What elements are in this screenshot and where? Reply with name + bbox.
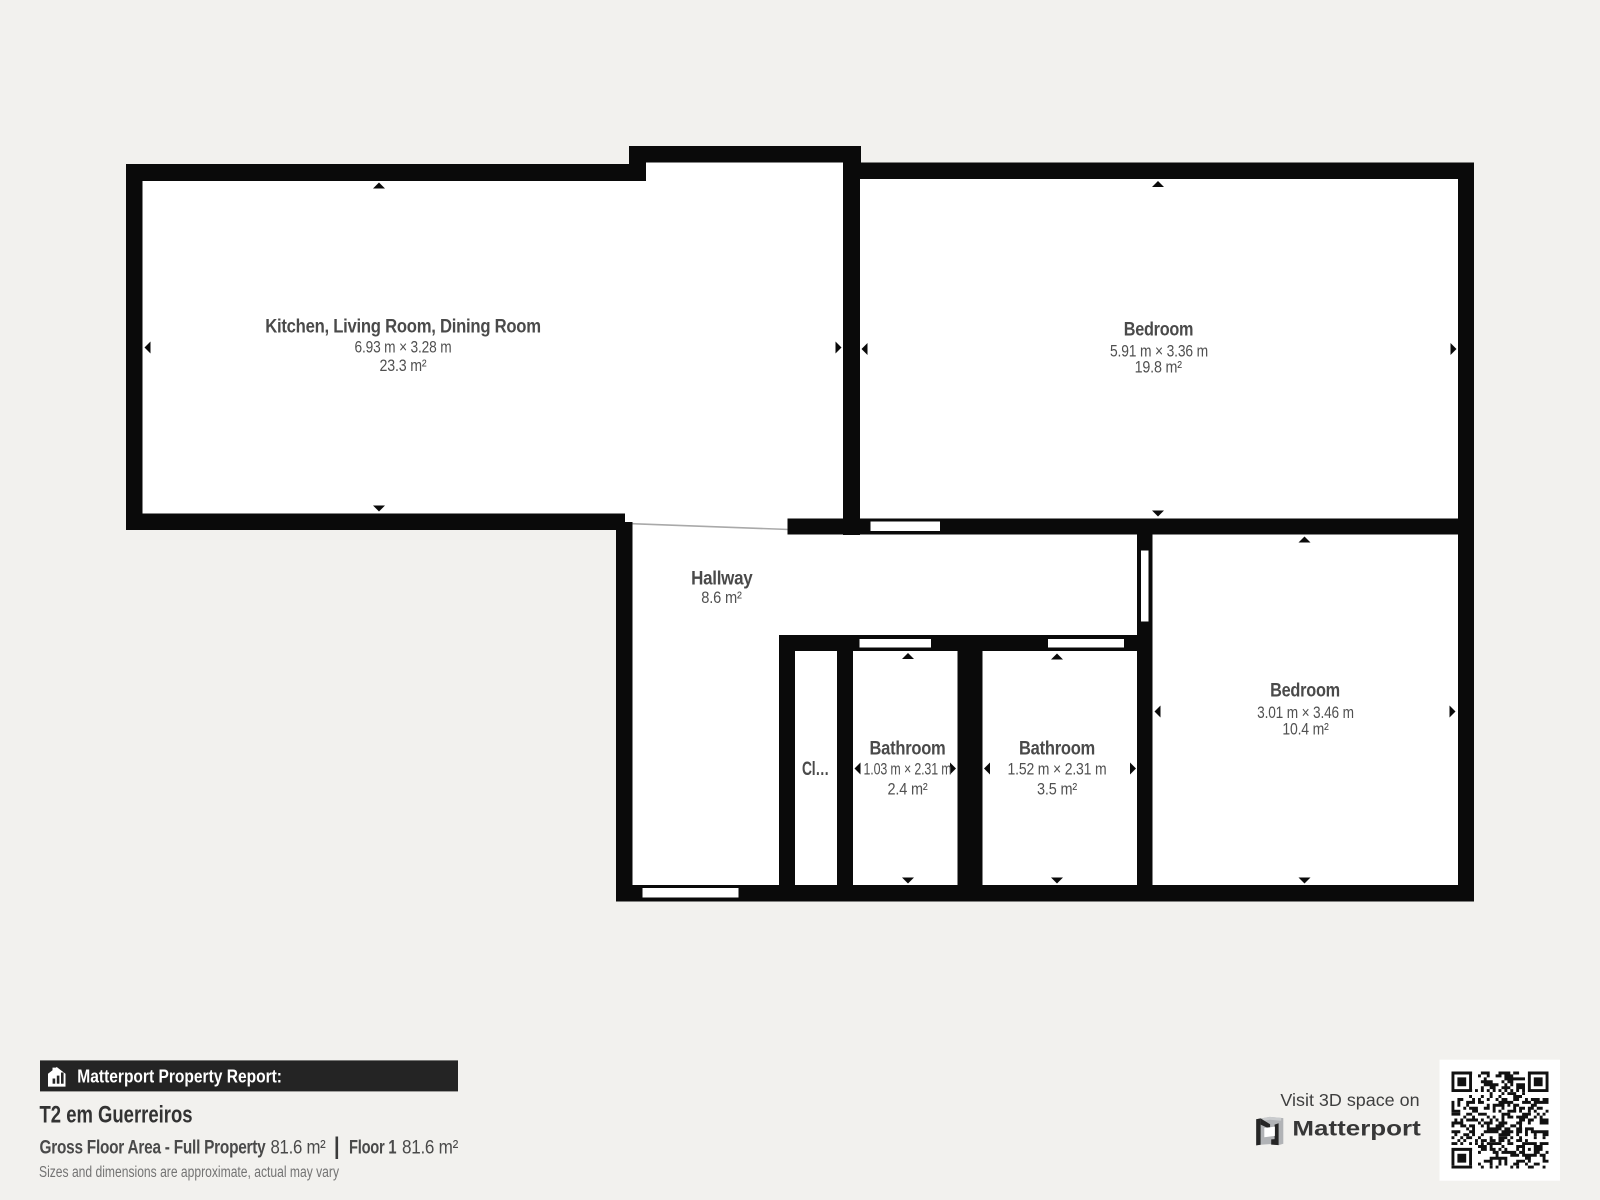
svg-text:Gross Floor Area - Full Proper: Gross Floor Area - Full Property (40, 1138, 267, 1159)
svg-text:Bathroom: Bathroom (870, 739, 946, 760)
svg-text:Kitchen, Living Room, Dining R: Kitchen, Living Room, Dining Room (265, 317, 541, 338)
svg-text:8.6 m²: 8.6 m² (701, 588, 742, 607)
svg-text:Bedroom: Bedroom (1124, 320, 1194, 341)
svg-text:Bathroom: Bathroom (1019, 739, 1095, 760)
svg-text:Hallway: Hallway (691, 569, 753, 590)
svg-text:19.8 m²: 19.8 m² (1135, 358, 1183, 377)
svg-text:Cl…: Cl… (802, 759, 829, 780)
svg-text:81.6 m²: 81.6 m² (271, 1138, 326, 1159)
svg-text:Floor 1: Floor 1 (349, 1138, 397, 1159)
svg-text:Matterport: Matterport (1292, 1117, 1420, 1141)
svg-text:10.4 m²: 10.4 m² (1282, 720, 1329, 739)
svg-text:Bedroom: Bedroom (1270, 681, 1340, 702)
svg-text:1.52 m × 2.31 m: 1.52 m × 2.31 m (1008, 760, 1107, 779)
svg-text:Sizes and dimensions are appro: Sizes and dimensions are approximate, ac… (39, 1164, 339, 1181)
svg-text:2.4 m²: 2.4 m² (888, 780, 928, 799)
svg-text:1.03 m × 2.31 m: 1.03 m × 2.31 m (864, 760, 952, 779)
svg-text:81.6 m²: 81.6 m² (402, 1138, 458, 1159)
svg-text:Matterport Property Report:: Matterport Property Report: (77, 1066, 282, 1087)
svg-text:T2 em Guerreiros: T2 em Guerreiros (40, 1102, 193, 1129)
svg-text:6.93 m × 3.28 m: 6.93 m × 3.28 m (355, 338, 452, 357)
svg-text:23.3 m²: 23.3 m² (380, 356, 427, 375)
svg-text:3.5 m²: 3.5 m² (1037, 780, 1077, 799)
svg-text:Visit 3D space on: Visit 3D space on (1280, 1090, 1419, 1110)
